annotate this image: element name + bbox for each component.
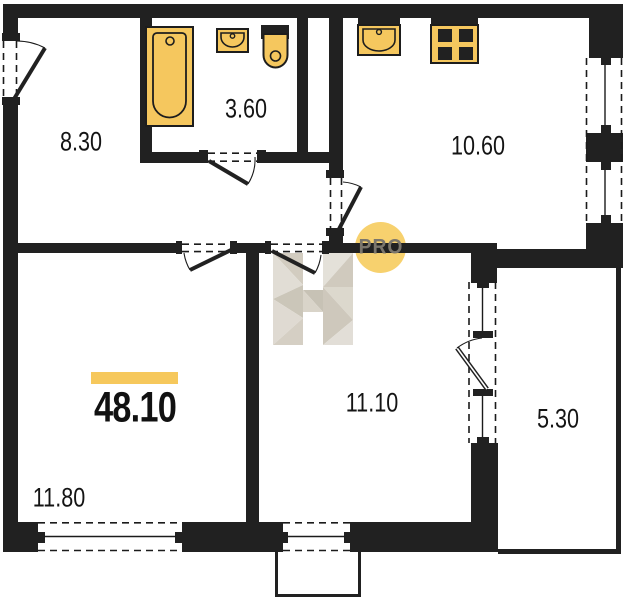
total-area-accent-bar	[91, 372, 178, 384]
room-area-label-bathroom: 3.60	[225, 96, 267, 123]
plan-linework	[0, 0, 626, 600]
window-dashes	[4, 41, 622, 551]
toilet-icon	[261, 25, 289, 68]
pro-badge-text: PRO	[359, 237, 404, 258]
bathtub-icon	[146, 27, 193, 126]
kitchen-sink-icon	[358, 17, 400, 55]
total-area-label: 48.10	[94, 387, 176, 430]
room-area-label-living-room: 11.80	[33, 485, 85, 512]
room-area-label-kitchen: 10.60	[451, 133, 505, 160]
room-area-label-balcony: 5.30	[537, 406, 579, 433]
window-glass-lines	[44, 65, 605, 537]
door-swing-arcs	[17, 41, 482, 348]
balcony-door-leaf	[457, 348, 487, 389]
stove-icon	[431, 17, 478, 63]
floorplan: 8.30 3.60 10.60 11.80 11.10 5.30 48.10 P…	[0, 0, 626, 600]
room-area-label-bedroom: 11.10	[346, 390, 398, 417]
bathroom-sink-icon	[217, 29, 248, 52]
room-area-label-hallway: 8.30	[60, 129, 102, 156]
